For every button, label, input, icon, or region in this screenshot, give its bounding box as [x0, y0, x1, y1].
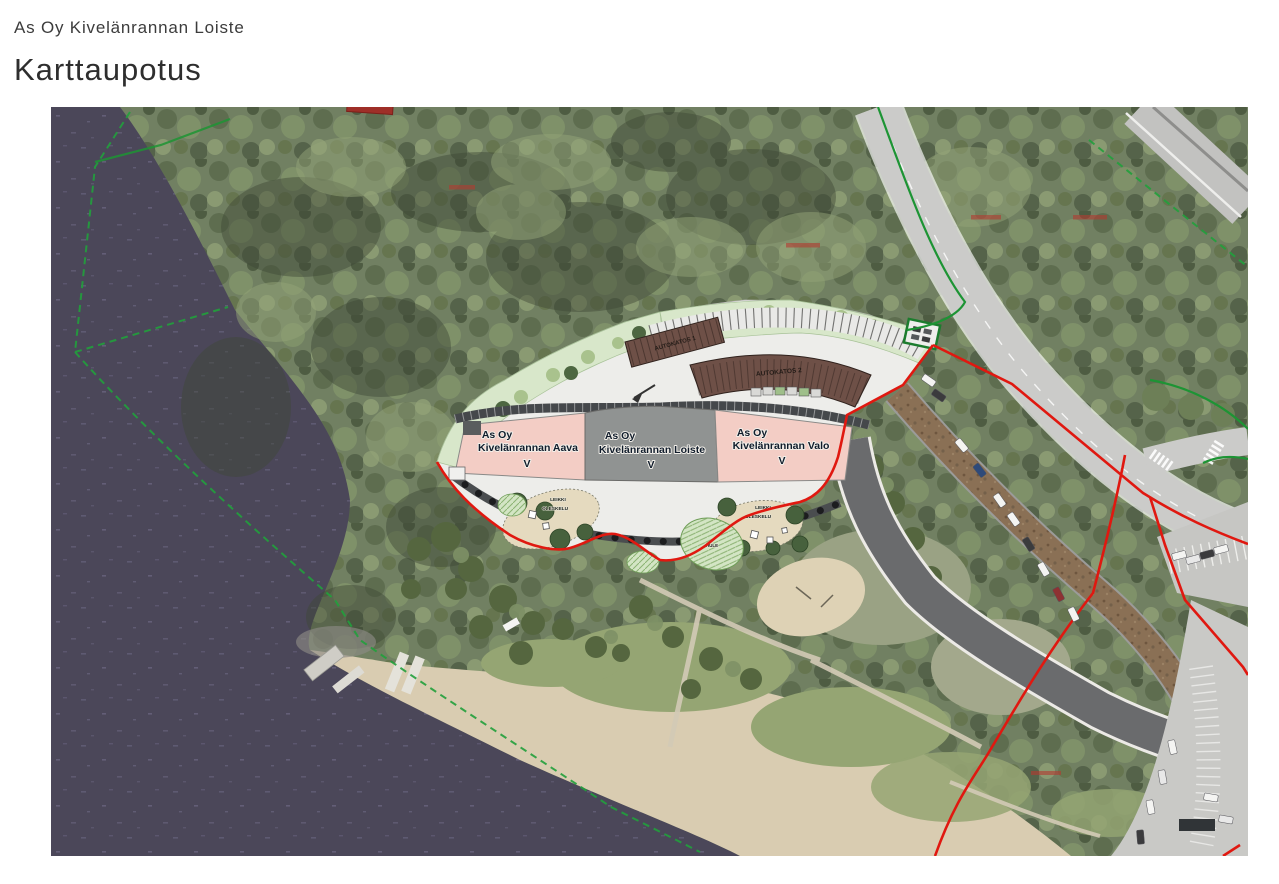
building-valo-label-line1: As Oy	[737, 427, 768, 439]
building-aava-floors: V	[523, 458, 530, 470]
building-loiste-floors: V	[647, 459, 654, 471]
ramp-structure	[463, 421, 481, 435]
building-valo-floors: V	[778, 455, 785, 467]
page-title: Karttaupotus	[14, 52, 202, 88]
project-name-text: As Oy Kivelänrannan Loiste	[14, 18, 245, 38]
building-loiste-label-line1: As Oy	[605, 430, 636, 442]
page: { "header": { "project": "As Oy Kivelänr…	[0, 0, 1279, 884]
building-loiste-label-line2: Kivelänrannan Loiste	[599, 444, 705, 456]
playground-left-label1: LEIKKI	[550, 497, 566, 503]
building-aava-label-line1: As Oy	[482, 429, 513, 441]
aerial-map-embed: AUTOKATOS 1 AUTOKATOS 2 LEIKKI OLE	[51, 107, 1248, 856]
service-building	[449, 467, 465, 480]
building-valo-label-line2: Kivelänrannan Valo	[733, 440, 830, 452]
bus-shelter	[1179, 819, 1215, 831]
playground-left-label2: OLESKELU	[542, 506, 569, 512]
aerial-map-canvas: AUTOKATOS 1 AUTOKATOS 2 LEIKKI OLE	[51, 107, 1248, 856]
building-aava-label-line2: Kivelänrannan Aava	[478, 442, 578, 454]
